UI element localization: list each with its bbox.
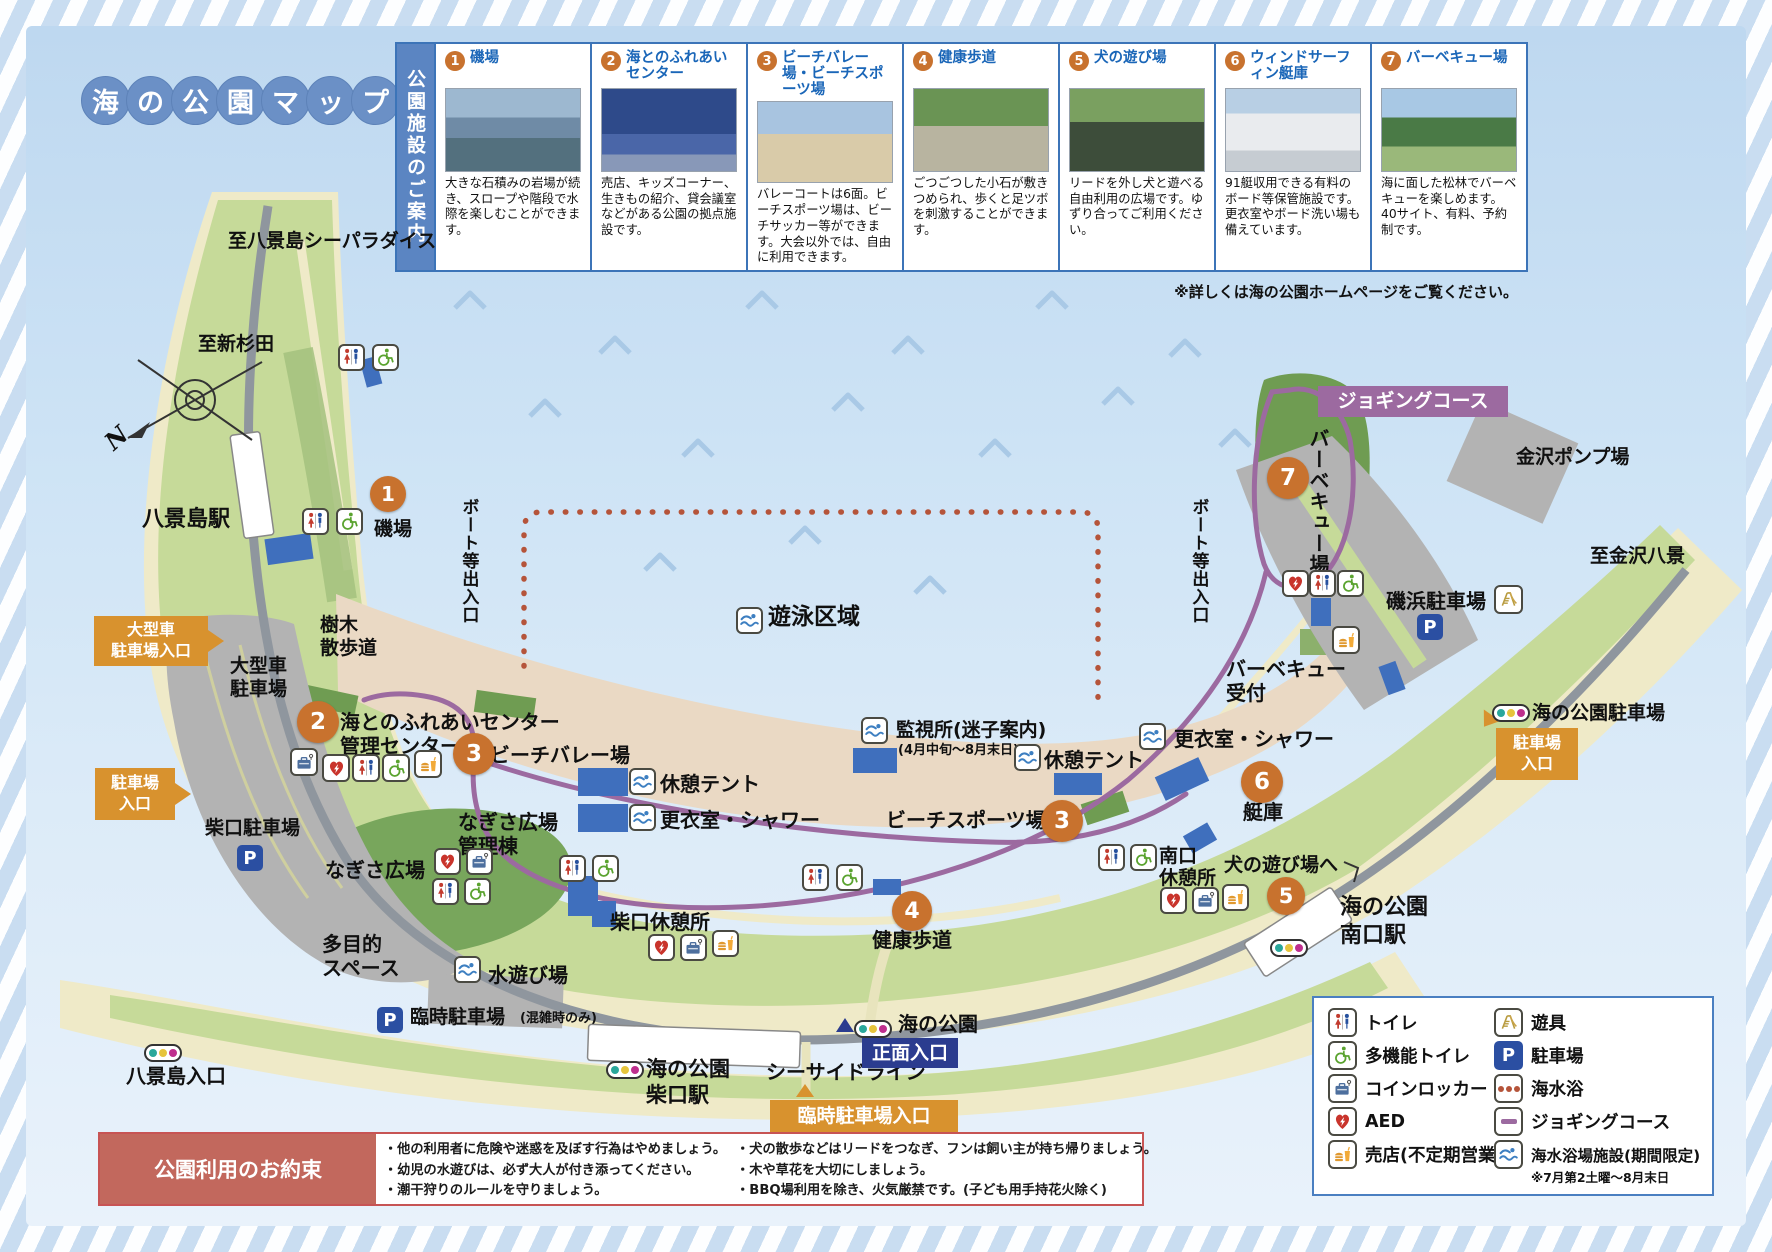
aed-icon xyxy=(322,754,350,782)
aed-icon xyxy=(648,934,675,961)
badge-large-parking-entrance: 大型車 駐車場入口 xyxy=(94,616,208,666)
label-isohama-parking: 磯浜駐車場 xyxy=(1386,589,1486,613)
legend-label: 遊具 xyxy=(1531,1010,1566,1035)
label-shower-right: 更衣室・シャワー xyxy=(1174,727,1334,751)
shop-icon xyxy=(712,930,739,957)
sea-bathing-dots-icon xyxy=(1494,1074,1523,1103)
wheelchair-icon xyxy=(1337,570,1364,597)
card-description: 大きな石積みの岩場が続き、スロープや階段で水際を楽しむことができます。 xyxy=(445,176,581,239)
aed-icon xyxy=(434,848,461,875)
card-title: ビーチバレー場・ビーチスポーツ場 xyxy=(782,50,893,99)
card-number: 5 xyxy=(1069,51,1089,71)
title-char: 海 xyxy=(81,76,130,125)
traffic-light-icon xyxy=(854,1020,892,1038)
main-gate-arrow xyxy=(836,1018,854,1032)
badge-jogging-course: ジョギングコース xyxy=(1318,386,1508,417)
card-photo xyxy=(601,88,737,172)
label-large-parking: 大型車 駐車場 xyxy=(230,655,287,701)
badge-arrow xyxy=(175,783,191,805)
label-to-seaparadise: 至八景島シーパラダイス xyxy=(228,230,436,253)
card-number: 3 xyxy=(757,51,777,71)
card-title: 海とのふれあいセンター xyxy=(626,50,737,82)
toilet-icon xyxy=(559,855,586,882)
legend-item-playground: 遊具 xyxy=(1494,1006,1700,1039)
label-teiko: 艇庫 xyxy=(1243,800,1283,824)
label-umi-no-koen-gate: 海の公園 xyxy=(898,1012,978,1036)
traffic-light-icon xyxy=(144,1044,182,1062)
card-description: 海に面した松林でバーベキューを楽しめます。40サイト、有料、予約制です。 xyxy=(1381,176,1517,239)
badge-parking-entrance-right: 駐車場 入口 xyxy=(1496,728,1578,780)
label-kenko-hodo: 健康歩道 xyxy=(872,928,952,952)
label-hakkeijima-gate: 八景島入口 xyxy=(126,1064,226,1088)
label-dog-area: 犬の遊び場へ xyxy=(1224,854,1338,877)
swim-icon xyxy=(1139,723,1166,750)
card-photo xyxy=(1069,88,1205,172)
label-monitor: 監視所(迷子案内) xyxy=(896,719,1046,742)
label-shibaguchi-parking: 柴口駐車場 xyxy=(205,817,300,840)
badge-arrow xyxy=(208,630,224,652)
legend-item-multi-toilet: 多機能トイレ xyxy=(1328,1039,1504,1072)
marker-3a: 3 xyxy=(453,733,495,775)
label-uminokoen-parking: 海の公園駐車場 xyxy=(1532,702,1665,725)
facility-card-fureai-center: 2 海とのふれあいセンター 売店、キッズコーナー、生きもの紹介、貸会議室などがあ… xyxy=(590,44,746,270)
parking-icon: P xyxy=(237,845,263,871)
title-char: プ xyxy=(351,76,400,125)
legend-label: AED xyxy=(1365,1112,1405,1132)
toilet-icon xyxy=(802,864,829,891)
parking-letter: P xyxy=(243,848,256,869)
card-description: ごつごつした小石が敷きつめられ、歩くと足ツボを刺激することができます。 xyxy=(913,176,1049,239)
parking-letter: P xyxy=(1423,617,1436,638)
legend-seasonal-note: ※7月第2土曜～8月末日 xyxy=(1531,1167,1700,1186)
card-description: 91艇収用できる有料のボード等保管施設です。更衣室やボード洗い場も備えています。 xyxy=(1225,176,1361,239)
rule-item: ・犬の散歩などはリードをつなぎ、フンは飼い主が持ち帰りましょう。 xyxy=(736,1140,1157,1161)
aed-icon xyxy=(1160,887,1187,914)
locker-icon xyxy=(1192,887,1219,914)
toilet-icon xyxy=(338,344,365,371)
card-description: 売店、キッズコーナー、生きもの紹介、貸会議室などがある公園の拠点施設です。 xyxy=(601,176,737,239)
legend-label: ジョギングコース xyxy=(1531,1109,1670,1134)
rule-item: ・木や草花を大切にしましょう。 xyxy=(736,1161,1157,1182)
label-minamiguchi-rest: 南口 休憩所 xyxy=(1159,846,1216,890)
rules-column-1: ・他の利用者に危険や迷惑を及ぼす行為はやめましょう。 ・幼児の水遊びは、必ず大人… xyxy=(384,1140,726,1198)
rules-title: 公園利用のお約束 xyxy=(100,1134,376,1204)
locker-icon xyxy=(1328,1074,1357,1103)
card-photo xyxy=(445,88,581,172)
label-monitor-sub: (4月中旬～8月末日) xyxy=(898,743,1019,759)
legend-item-toilet: トイレ xyxy=(1328,1006,1504,1039)
label-beach-sports: ビーチスポーツ場 xyxy=(886,808,1046,832)
label-rinji-parking: 臨時駐車場 xyxy=(410,1006,505,1029)
facility-card-isoba: 1 磯場 大きな石積みの岩場が続き、スロープや階段で水際を楽しむことができます。 xyxy=(434,44,590,270)
label-tent-mid: 休憩テント xyxy=(1044,748,1144,772)
label-beach-volley: ビーチバレー場 xyxy=(490,743,630,767)
card-title: 犬の遊び場 xyxy=(1094,50,1167,66)
title-char: 園 xyxy=(216,76,265,125)
facility-card-bbq: 7 バーベキュー場 海に面した松林でバーベキューを楽しめます。40サイト、有料、… xyxy=(1370,44,1526,270)
card-photo xyxy=(757,101,893,184)
shop-icon xyxy=(1222,884,1249,911)
title-char: マ xyxy=(261,76,310,125)
title-char: 公 xyxy=(171,76,220,125)
legend-label: トイレ xyxy=(1365,1010,1418,1035)
label-to-kanazawa-hakkei: 至金沢八景 xyxy=(1590,545,1685,568)
title-char: の xyxy=(126,76,175,125)
wheelchair-icon xyxy=(836,864,863,891)
traffic-light-icon xyxy=(1492,704,1530,722)
card-title: 健康歩道 xyxy=(938,50,996,66)
marker-5: 5 xyxy=(1267,877,1305,915)
badge-arrow xyxy=(796,1084,814,1097)
marker-1: 1 xyxy=(370,476,406,512)
label-isoba: 磯場 xyxy=(374,518,412,541)
jogging-line-icon xyxy=(1494,1107,1523,1136)
parking-icon: P xyxy=(1417,614,1443,640)
map-canvas: 海 の 公 園 マ ッ プ 公園施設のご案内 1 磯場 大きな石積みの岩場が続き… xyxy=(26,26,1746,1226)
label-hakkeijima-station: 八景島駅 xyxy=(142,507,230,533)
label-tent-left: 休憩テント xyxy=(660,772,760,796)
legend-label: 駐車場 xyxy=(1531,1043,1584,1068)
traffic-light-icon xyxy=(1270,939,1308,957)
park-rules-box: 公園利用のお約束 ・他の利用者に危険や迷惑を及ぼす行為はやめましょう。 ・幼児の… xyxy=(98,1132,1144,1206)
legend-box: トイレ 多機能トイレ コインロッカー AED 売店(不定期営業) 遊具 P 駐車… xyxy=(1312,996,1714,1196)
rule-item: ・BBQ場利用を除き、火気厳禁です。(子ども用手持花火除く) xyxy=(736,1181,1157,1202)
label-shower-left: 更衣室・シャワー xyxy=(660,808,820,832)
parking-icon: P xyxy=(377,1007,403,1033)
rule-item: ・他の利用者に危険や迷惑を及ぼす行為はやめましょう。 xyxy=(384,1140,726,1161)
label-bbq-area: バーベキュー場 xyxy=(1306,428,1330,588)
card-number: 2 xyxy=(601,51,621,71)
aed-icon xyxy=(1328,1107,1357,1136)
homepage-note: ※詳しくは海の公園ホームページをご覧ください。 xyxy=(900,281,1518,302)
legend-label: 多機能トイレ xyxy=(1365,1043,1470,1068)
card-number: 6 xyxy=(1225,51,1245,71)
facility-card-dog-area: 5 犬の遊び場 リードを外し犬と遊べる自由利用の広場です。ゆずり合ってご利用くだ… xyxy=(1058,44,1214,270)
parking-letter: P xyxy=(1502,1045,1515,1066)
card-number: 4 xyxy=(913,51,933,71)
wheelchair-icon xyxy=(464,878,491,905)
marker-7: 7 xyxy=(1267,457,1309,499)
wheelchair-icon xyxy=(372,344,399,371)
parking-icon: P xyxy=(1494,1041,1523,1070)
label-boat-gate-left: ボート等出入口 xyxy=(458,498,478,668)
marker-2: 2 xyxy=(297,701,339,743)
label-shibaguchi-rest: 柴口休憩所 xyxy=(610,910,710,934)
locker-icon xyxy=(290,748,318,776)
swim-icon xyxy=(454,956,481,983)
label-mizuasobi: 水遊び場 xyxy=(488,963,568,987)
toilet-icon xyxy=(352,754,380,782)
label-bbq-reception: バーベキュー 受付 xyxy=(1226,657,1346,705)
label-nagisa: なぎさ広場 xyxy=(325,858,425,882)
card-number: 1 xyxy=(445,51,465,71)
toilet-icon xyxy=(1098,844,1125,871)
toilet-icon xyxy=(432,878,459,905)
toilet-icon xyxy=(302,508,329,535)
legend-item-sea-bathing: 海水浴 xyxy=(1494,1072,1700,1105)
wheelchair-icon xyxy=(1328,1041,1357,1070)
toilet-icon xyxy=(1328,1008,1357,1037)
legend-item-aed: AED xyxy=(1328,1105,1504,1138)
facility-card-kenko-hodo: 4 健康歩道 ごつごつした小石が敷きつめられ、歩くと足ツボを刺激することができま… xyxy=(902,44,1058,270)
label-tree-walk: 樹木 散歩道 xyxy=(320,614,377,660)
card-title: ウィンドサーフィン艇庫 xyxy=(1250,50,1361,82)
rules-column-2: ・犬の散歩などはリードをつなぎ、フンは飼い主が持ち帰りましょう。 ・木や草花を大… xyxy=(736,1140,1157,1198)
swim-icon xyxy=(1014,744,1041,771)
legend-item-parking: P 駐車場 xyxy=(1494,1039,1700,1072)
badge-main-gate: 正面入口 xyxy=(862,1038,958,1068)
wheelchair-icon xyxy=(592,855,619,882)
marker-3b: 3 xyxy=(1041,800,1083,842)
card-title: バーベキュー場 xyxy=(1406,50,1508,66)
page-frame: 海 の 公 園 マ ッ プ 公園施設のご案内 1 磯場 大きな石積みの岩場が続き… xyxy=(0,0,1772,1252)
rule-item: ・幼児の水遊びは、必ず大人が付き添ってください。 xyxy=(384,1161,726,1182)
legend-label: 海水浴場施設(期間限定) xyxy=(1531,1144,1700,1166)
legend-label: コインロッカー xyxy=(1365,1076,1488,1101)
legend-label: 売店(不定期営業) xyxy=(1365,1142,1504,1167)
legend-item-locker: コインロッカー xyxy=(1328,1072,1504,1105)
legend-item-shop: 売店(不定期営業) xyxy=(1328,1138,1504,1171)
locker-icon xyxy=(680,934,707,961)
parking-letter: P xyxy=(383,1010,396,1031)
badge-parking-entrance-left: 駐車場 入口 xyxy=(95,768,175,820)
label-rinji-parking-sub: (混雑時のみ) xyxy=(520,1011,597,1027)
shop-icon xyxy=(1332,626,1360,654)
slide-icon xyxy=(1494,1008,1523,1037)
label-minamiguchi-station: 海の公園 南口駅 xyxy=(1340,894,1428,949)
legend-right-column: 遊具 P 駐車場 海水浴 ジョギングコース 海水浴場施設(期間限定) ※7月第2… xyxy=(1494,1006,1700,1186)
rules-columns: ・他の利用者に危険や迷惑を及ぼす行為はやめましょう。 ・幼児の水遊びは、必ず大人… xyxy=(376,1134,1165,1204)
label-boat-gate-right: ボート等出入口 xyxy=(1188,498,1208,668)
label-to-shinsugita: 至新杉田 xyxy=(198,333,274,356)
marker-4: 4 xyxy=(892,891,932,931)
card-photo xyxy=(913,88,1049,172)
locker-icon xyxy=(466,848,493,875)
swim-icon xyxy=(1494,1140,1523,1169)
aed-icon xyxy=(1282,570,1309,597)
card-number: 7 xyxy=(1381,51,1401,71)
card-description: リードを外し犬と遊べる自由利用の広場です。ゆずり合ってご利用ください。 xyxy=(1069,176,1205,239)
rule-item: ・潮干狩りのルールを守りましょう。 xyxy=(384,1181,726,1202)
shop-icon xyxy=(414,750,442,778)
toilet-icon xyxy=(1309,570,1336,597)
facility-card-beach-volley: 3 ビーチバレー場・ビーチスポーツ場 バレーコートは6面。ビーチスポーツ場は、ビ… xyxy=(746,44,902,270)
swim-icon xyxy=(629,768,656,795)
legend-label: 海水浴 xyxy=(1531,1076,1584,1101)
wheelchair-icon xyxy=(382,754,410,782)
marker-6: 6 xyxy=(1241,761,1283,803)
shop-icon xyxy=(1328,1140,1357,1169)
traffic-light-icon xyxy=(606,1061,644,1079)
label-kanazawa-pump: 金沢ポンプ場 xyxy=(1516,446,1629,469)
slide-icon xyxy=(1494,585,1523,614)
badge-rinji-entrance: 臨時駐車場入口 xyxy=(770,1100,958,1133)
label-swim-zone: 遊泳区域 xyxy=(768,604,860,632)
card-photo xyxy=(1225,88,1361,172)
legend-left-column: トイレ 多機能トイレ コインロッカー AED 売店(不定期営業) xyxy=(1328,1006,1504,1171)
wheelchair-icon xyxy=(336,508,363,535)
wheelchair-icon xyxy=(1130,844,1157,871)
facility-card-windsurf: 6 ウィンドサーフィン艇庫 91艇収用できる有料のボード等保管施設です。更衣室や… xyxy=(1214,44,1370,270)
label-tamokuteki: 多目的 スペース xyxy=(322,932,400,980)
card-title: 磯場 xyxy=(470,50,499,66)
legend-item-jogging: ジョギングコース xyxy=(1494,1105,1700,1138)
swim-icon xyxy=(861,717,888,744)
facilities-panel: 公園施設のご案内 1 磯場 大きな石積みの岩場が続き、スロープや階段で水際を楽し… xyxy=(395,42,1528,272)
card-photo xyxy=(1381,88,1517,172)
page-title: 海 の 公 園 マ ッ プ xyxy=(81,76,396,125)
title-char: ッ xyxy=(306,76,355,125)
label-shibaguchi-station: 海の公園 柴口駅 xyxy=(646,1056,730,1109)
card-description: バレーコートは6面。ビーチスポーツ場は、ビーチサッカー等ができます。大会以外では… xyxy=(757,187,893,266)
swim-icon xyxy=(736,607,763,634)
swim-icon xyxy=(629,804,656,831)
